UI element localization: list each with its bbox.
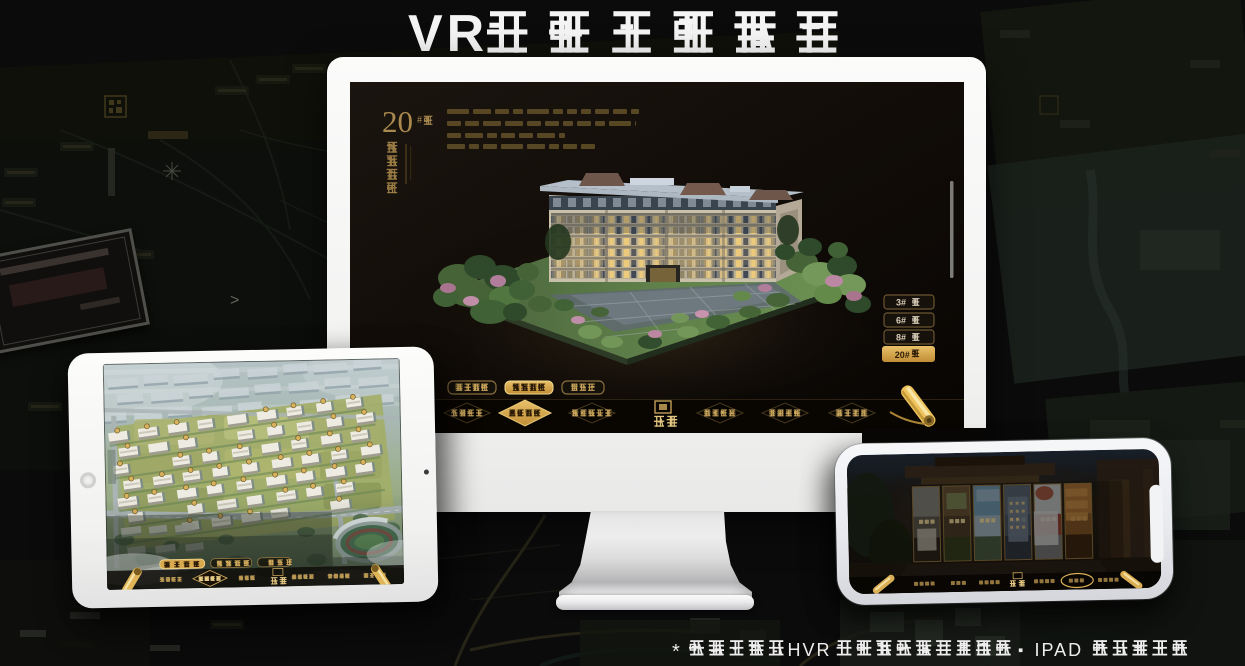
svg-text:6#: 6# xyxy=(896,316,906,326)
svg-text:20#: 20# xyxy=(895,350,910,360)
svg-text:VR: VR xyxy=(408,5,488,63)
svg-text:#: # xyxy=(417,115,422,126)
svg-text:HVR: HVR xyxy=(788,640,832,660)
svg-text:*: * xyxy=(672,641,680,663)
svg-text:20: 20 xyxy=(382,104,413,139)
svg-text:IPAD: IPAD xyxy=(1035,640,1084,660)
svg-text:3#: 3# xyxy=(896,298,906,308)
svg-text:>: > xyxy=(230,292,239,309)
svg-text:8#: 8# xyxy=(896,333,906,343)
